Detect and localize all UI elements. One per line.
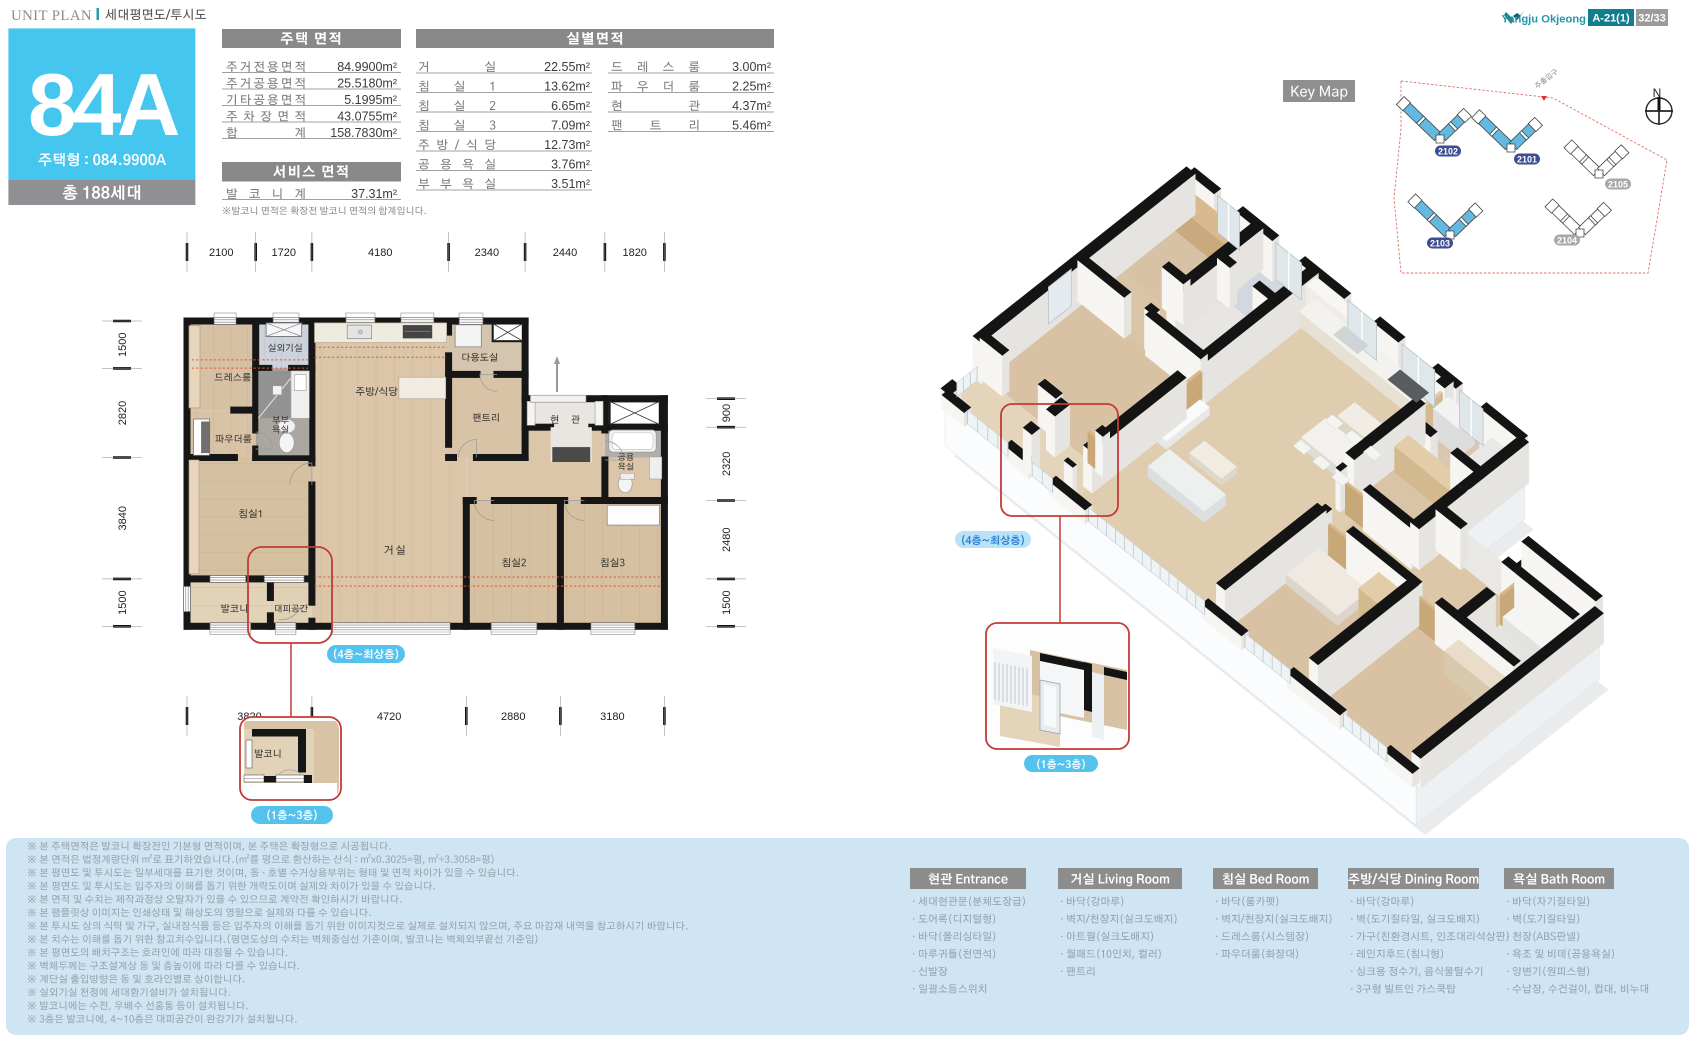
svg-text:2104: 2104 bbox=[1557, 236, 1577, 246]
svg-text:43.0755m²: 43.0755m² bbox=[337, 110, 397, 124]
svg-text:4.37m²: 4.37m² bbox=[732, 99, 771, 113]
svg-text:2480: 2480 bbox=[721, 527, 733, 551]
svg-text:3180: 3180 bbox=[600, 711, 624, 723]
svg-text:7.09m²: 7.09m² bbox=[551, 119, 590, 133]
svg-text:2340: 2340 bbox=[475, 247, 499, 259]
svg-text:2101: 2101 bbox=[1517, 155, 1537, 165]
svg-text:12.73m²: 12.73m² bbox=[544, 138, 590, 152]
svg-text:1500: 1500 bbox=[721, 590, 733, 614]
svg-text:6.65m²: 6.65m² bbox=[551, 99, 590, 113]
svg-text:13.62m²: 13.62m² bbox=[544, 80, 590, 94]
svg-text:A-21(1): A-21(1) bbox=[1592, 13, 1630, 25]
svg-text:2880: 2880 bbox=[501, 711, 525, 723]
svg-text:84A: 84A bbox=[28, 55, 179, 154]
svg-text:2102: 2102 bbox=[1438, 147, 1458, 157]
svg-text:3.76m²: 3.76m² bbox=[551, 158, 590, 172]
svg-text:Yangju Okjeong: Yangju Okjeong bbox=[1501, 14, 1586, 26]
svg-text:2820: 2820 bbox=[117, 401, 129, 425]
svg-text:4180: 4180 bbox=[368, 247, 392, 259]
svg-text:3.51m²: 3.51m² bbox=[551, 177, 590, 191]
svg-text:2320: 2320 bbox=[721, 452, 733, 476]
svg-text:158.7830m²: 158.7830m² bbox=[330, 126, 397, 140]
svg-text:37.31m²: 37.31m² bbox=[351, 187, 397, 201]
svg-text:1500: 1500 bbox=[117, 590, 129, 614]
svg-text:900: 900 bbox=[721, 404, 733, 422]
svg-text:1720: 1720 bbox=[272, 247, 296, 259]
svg-text:2.25m²: 2.25m² bbox=[732, 80, 771, 94]
svg-text:2103: 2103 bbox=[1430, 239, 1450, 249]
svg-text:1500: 1500 bbox=[117, 332, 129, 356]
svg-text:84.9900m²: 84.9900m² bbox=[337, 60, 397, 74]
svg-text:2440: 2440 bbox=[553, 247, 577, 259]
svg-text:2105: 2105 bbox=[1608, 180, 1628, 190]
svg-text:3840: 3840 bbox=[117, 506, 129, 530]
svg-text:5.1995m²: 5.1995m² bbox=[344, 93, 397, 107]
svg-text:5.46m²: 5.46m² bbox=[732, 119, 771, 133]
svg-text:4720: 4720 bbox=[377, 711, 401, 723]
svg-text:25.5180m²: 25.5180m² bbox=[337, 77, 397, 91]
svg-text:22.55m²: 22.55m² bbox=[544, 60, 590, 74]
svg-text:3.00m²: 3.00m² bbox=[732, 60, 771, 74]
svg-text:UNIT PLAN: UNIT PLAN bbox=[11, 8, 92, 24]
svg-text:32/33: 32/33 bbox=[1638, 13, 1666, 25]
svg-text:2100: 2100 bbox=[209, 247, 233, 259]
svg-text:1820: 1820 bbox=[622, 247, 646, 259]
